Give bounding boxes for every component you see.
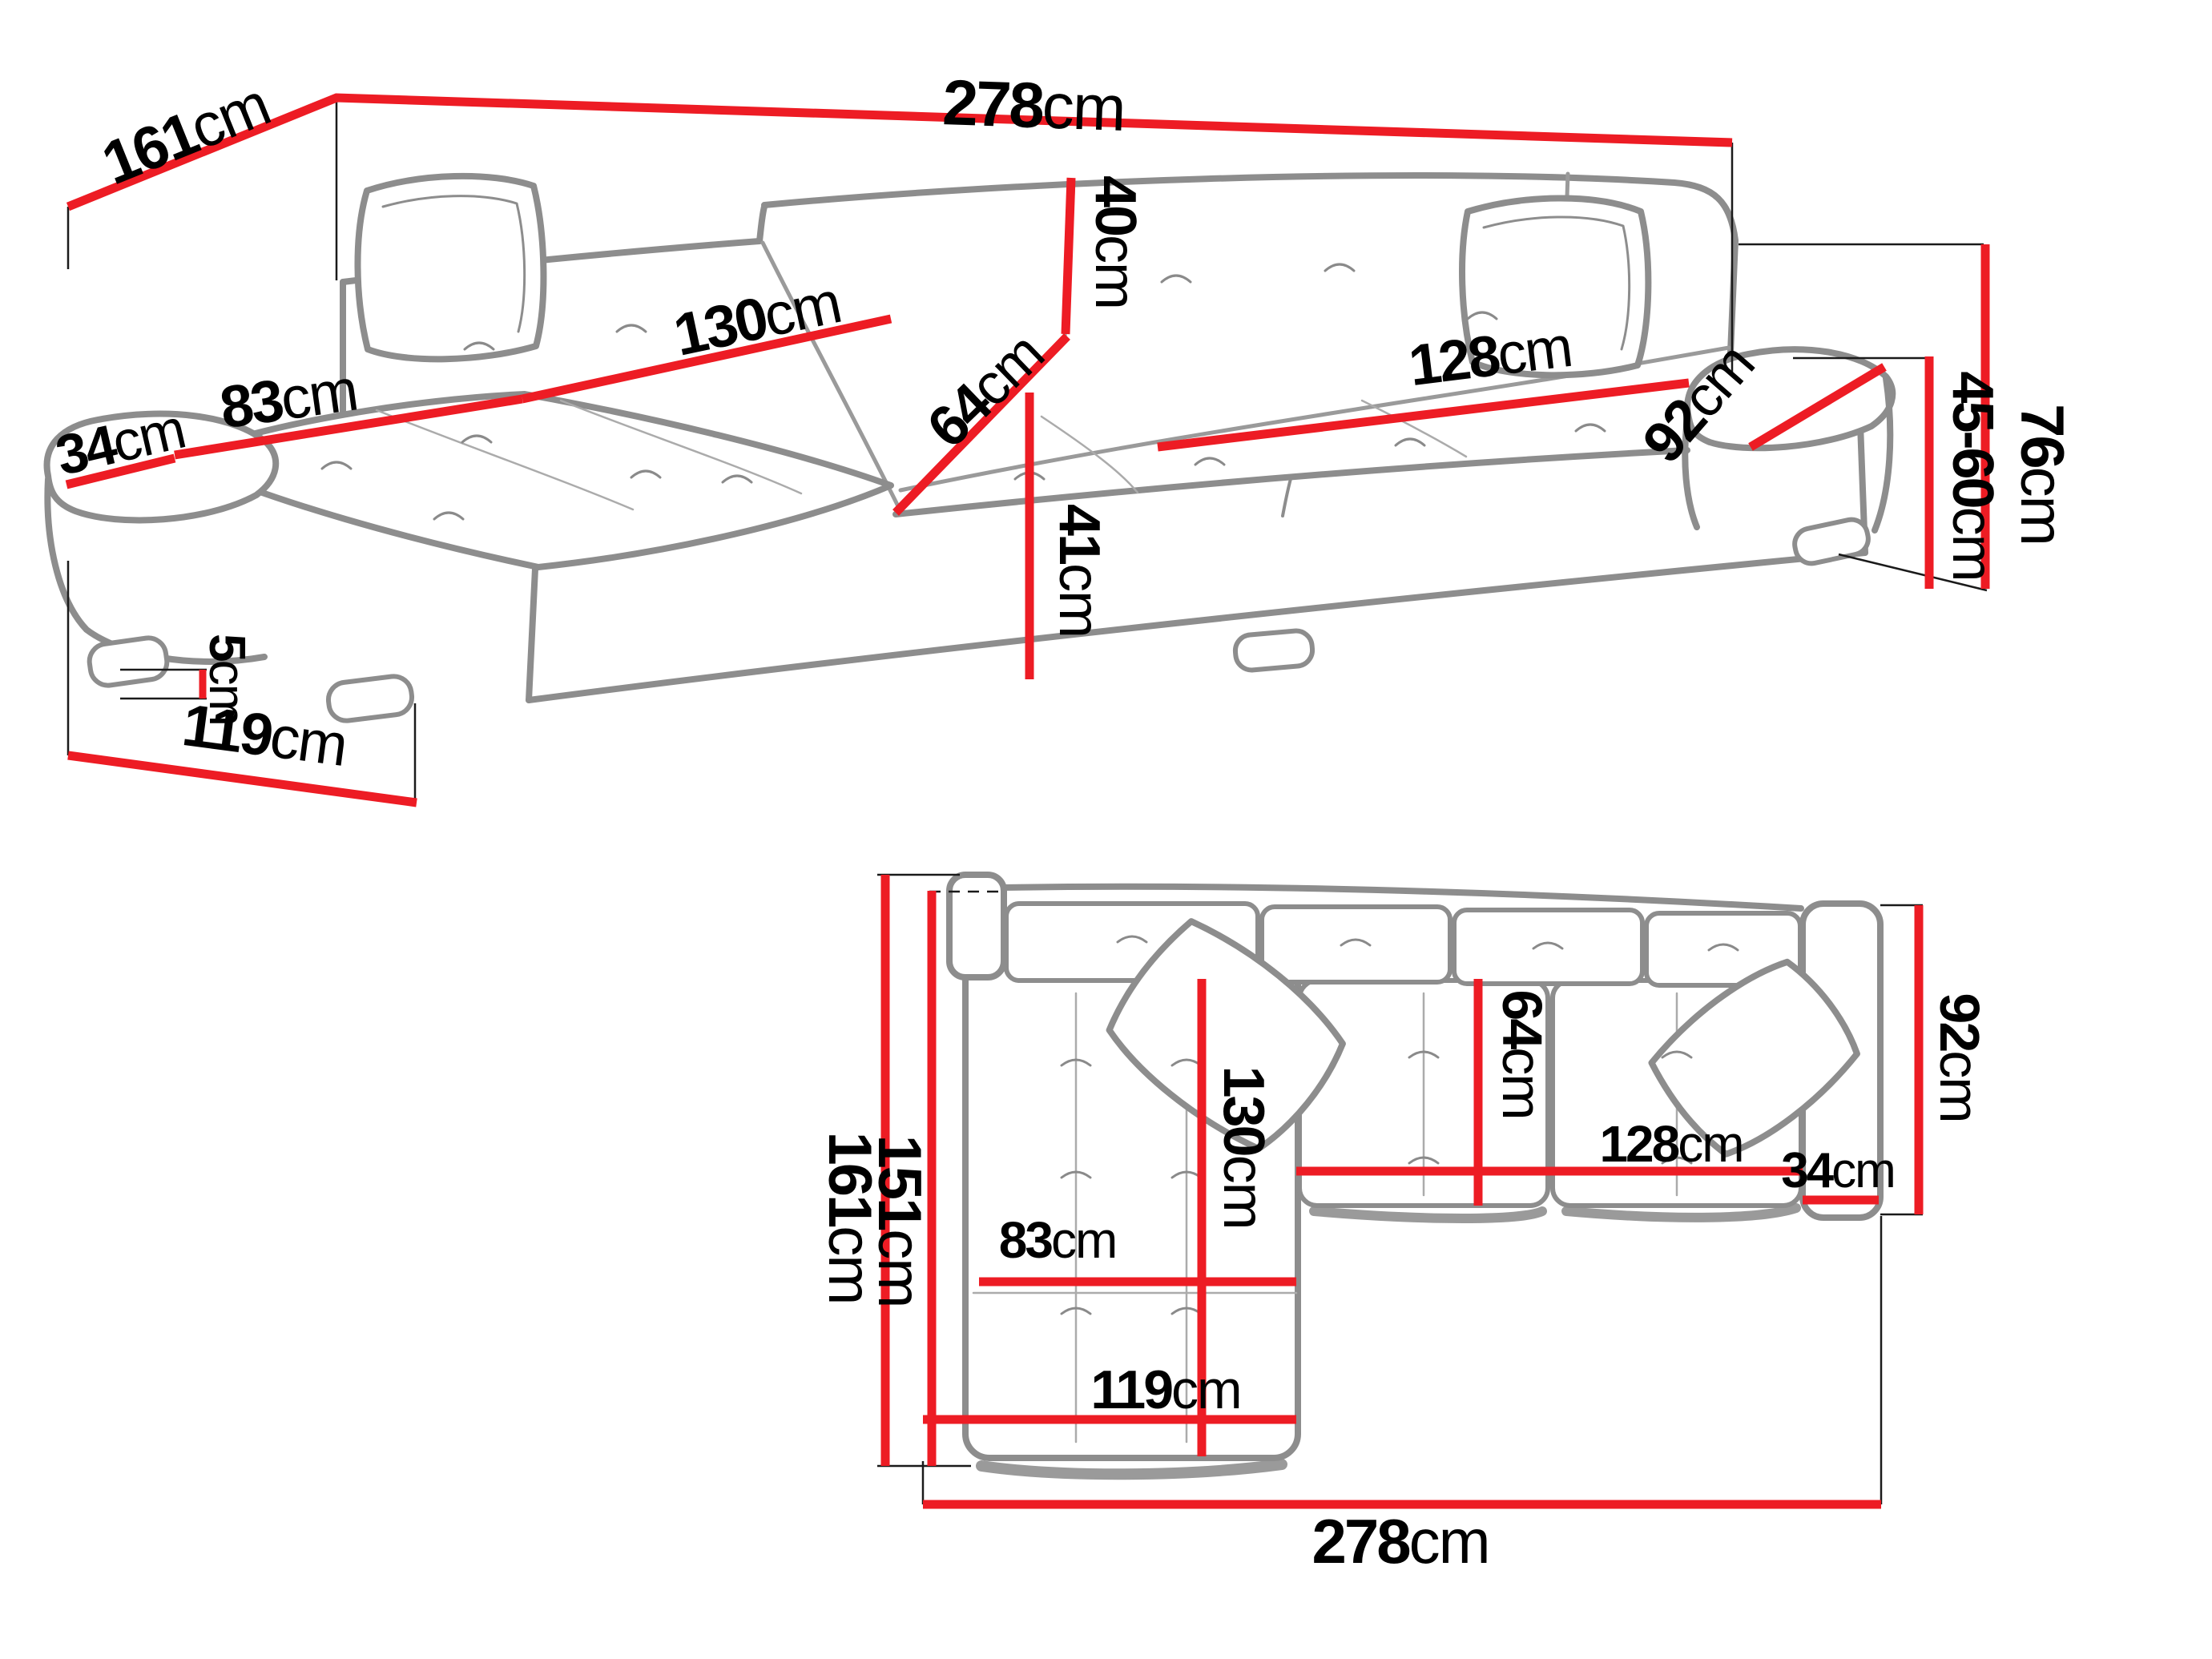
dim-unit: cm [1171,1359,1241,1420]
dim-label-plan-inner-depth: 151cm [868,1134,929,1307]
dim-unit: cm [865,1229,933,1307]
dim-value: 5 [199,634,256,660]
dim-value: 41 [1047,504,1111,563]
dim-value: 83 [999,1211,1051,1269]
backrest-corner-step [759,207,764,241]
dim-unit: cm [1494,315,1575,388]
dim-value: 128 [1599,1115,1678,1173]
dim-label-plan-arm-width: 34cm [1781,1146,1895,1196]
dim-line-persp-total [68,98,1732,207]
left-pillow [357,176,543,359]
dim-value: 119 [1090,1359,1171,1420]
dim-value: 76 [2008,404,2076,467]
plan-corner-headrest [949,875,1004,977]
dim-label-plan-seat-depth: 64cm [1494,989,1550,1118]
sofa-dimension-diagram: 278cm 161cm 34cm 83cm 130cm 40cm 64cm 41… [0,0,2212,1659]
dim-value: 34 [1781,1143,1831,1198]
dim-value: 130 [1211,1065,1275,1154]
dim-unit: cm [1211,1155,1275,1229]
dim-unit: cm [1940,507,2004,581]
dim-label-plan-chaise-width: 83cm [999,1214,1117,1266]
dim-label-persp-seat-height: 41cm [1050,504,1108,637]
dim-unit: cm [1047,563,1111,637]
dim-value: 278 [1311,1506,1408,1576]
dim-value: 119 [179,691,275,769]
dim-value: 64 [1491,989,1553,1047]
dim-label-persp-backrest-height: 40cm [1086,175,1144,308]
dim-unit: cm [1491,1047,1553,1118]
dim-unit: cm [1083,235,1147,308]
dim-unit: cm [276,356,361,433]
dim-unit: cm [2008,467,2076,545]
seat-front-edge [896,450,1687,514]
plan-back-cushions [1006,904,1800,985]
dim-unit: cm [1928,1050,1991,1121]
dim-unit: cm [1831,1143,1895,1198]
dim-line-persp-backrest-height [1066,178,1071,334]
dim-unit: cm [266,703,350,779]
dim-value: 83 [216,367,286,441]
dim-label-persp-total-width: 278cm [941,70,1126,141]
seat-cushion-seam [1283,476,1291,516]
dim-label-plan-chaise-length: 130cm [1215,1065,1272,1228]
dim-unit: cm [1678,1115,1743,1173]
dim-value: 92 [1928,993,1991,1050]
dim-value: 151 [865,1134,933,1229]
dim-label-plan-seat-width: 128cm [1599,1118,1743,1170]
dim-value: 45-60 [1940,371,2004,506]
dim-value: 128 [1405,324,1501,398]
dim-label-plan-arm-length: 92cm [1932,993,1988,1121]
dim-value: 278 [941,66,1044,141]
dim-label-persp-arm-height: 45-60cm [1944,371,2001,580]
sofa-legs [87,517,1872,723]
dim-label-plan-chaise-front: 119cm [1090,1363,1240,1417]
dim-unit: cm [1409,1506,1489,1576]
dim-value: 40 [1083,175,1147,235]
dim-unit: cm [1051,1211,1116,1269]
dim-label-persp-total-height: 76cm [2011,404,2072,545]
dim-label-plan-total-width: 278cm [1311,1510,1489,1572]
dim-unit: cm [1041,70,1126,144]
